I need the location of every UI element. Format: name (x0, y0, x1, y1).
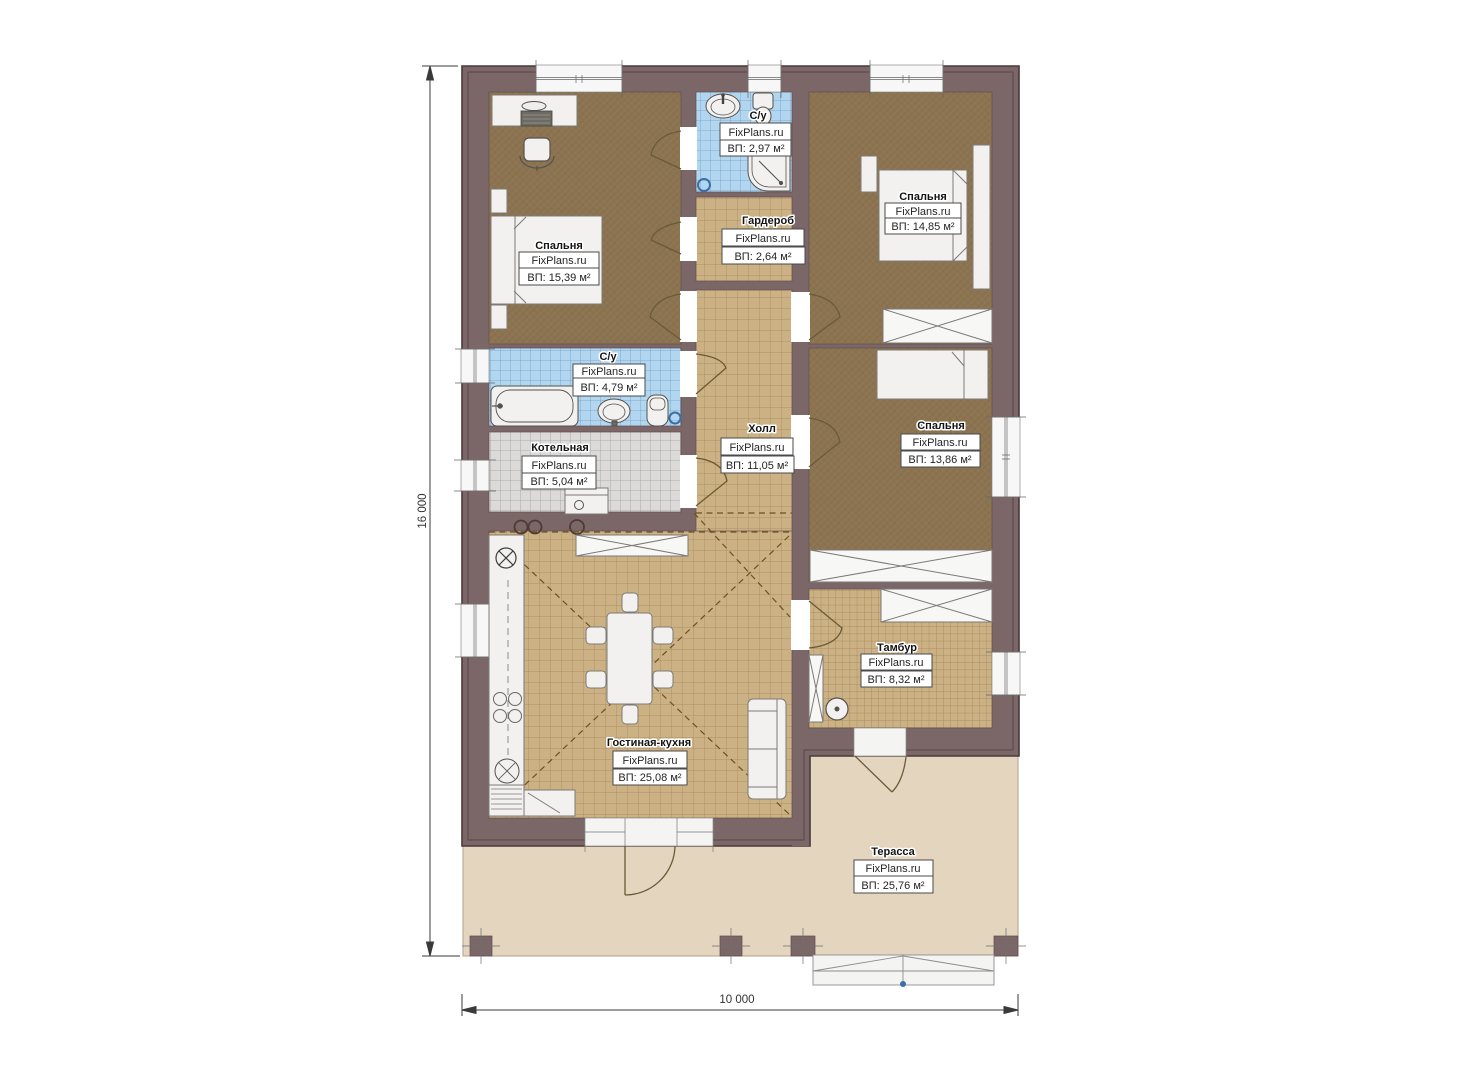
svg-text:ВП: 5,04 м²: ВП: 5,04 м² (530, 476, 587, 488)
svg-text:FixPlans.ru: FixPlans.ru (868, 657, 923, 669)
svg-text:FixPlans.ru: FixPlans.ru (581, 366, 636, 378)
svg-text:Спальня: Спальня (917, 420, 965, 432)
svg-text:Терасса: Терасса (871, 846, 915, 858)
svg-text:Котельная: Котельная (531, 442, 589, 454)
svg-text:ВП: 8,32 м²: ВП: 8,32 м² (867, 674, 924, 686)
svg-text:ВП: 2,97 м²: ВП: 2,97 м² (727, 143, 784, 155)
svg-text:16 000: 16 000 (417, 493, 429, 528)
svg-text:FixPlans.ru: FixPlans.ru (531, 460, 586, 472)
svg-text:Холл: Холл (748, 423, 776, 435)
svg-text:FixPlans.ru: FixPlans.ru (729, 442, 784, 454)
svg-text:Гардероб: Гардероб (742, 215, 794, 227)
svg-text:ВП: 4,79 м²: ВП: 4,79 м² (580, 382, 637, 394)
svg-text:ВП: 2,64 м²: ВП: 2,64 м² (734, 251, 791, 263)
svg-text:FixPlans.ru: FixPlans.ru (622, 755, 677, 767)
svg-text:FixPlans.ru: FixPlans.ru (865, 863, 920, 875)
svg-text:ВП: 25,08 м²: ВП: 25,08 м² (618, 772, 682, 784)
svg-text:FixPlans.ru: FixPlans.ru (735, 233, 790, 245)
svg-text:С/у: С/у (749, 110, 767, 122)
svg-text:10 000: 10 000 (719, 994, 754, 1006)
svg-text:ВП: 11,05 м²: ВП: 11,05 м² (726, 460, 789, 472)
svg-text:ВП: 13,86 м²: ВП: 13,86 м² (908, 454, 972, 466)
svg-text:FixPlans.ru: FixPlans.ru (728, 127, 783, 139)
svg-text:Тамбур: Тамбур (877, 642, 917, 654)
svg-text:ВП: 15,39 м²: ВП: 15,39 м² (527, 272, 591, 284)
svg-text:Гостиная-кухня: Гостиная-кухня (607, 737, 691, 749)
svg-text:ВП: 14,85 м²: ВП: 14,85 м² (891, 221, 955, 233)
svg-text:Спальня: Спальня (899, 191, 947, 203)
svg-text:FixPlans.ru: FixPlans.ru (895, 206, 950, 218)
svg-text:С/у: С/у (599, 351, 617, 363)
svg-text:ВП: 25,76 м²: ВП: 25,76 м² (861, 880, 925, 892)
svg-text:FixPlans.ru: FixPlans.ru (912, 437, 967, 449)
svg-text:FixPlans.ru: FixPlans.ru (531, 255, 586, 267)
svg-text:Спальня: Спальня (535, 240, 583, 252)
